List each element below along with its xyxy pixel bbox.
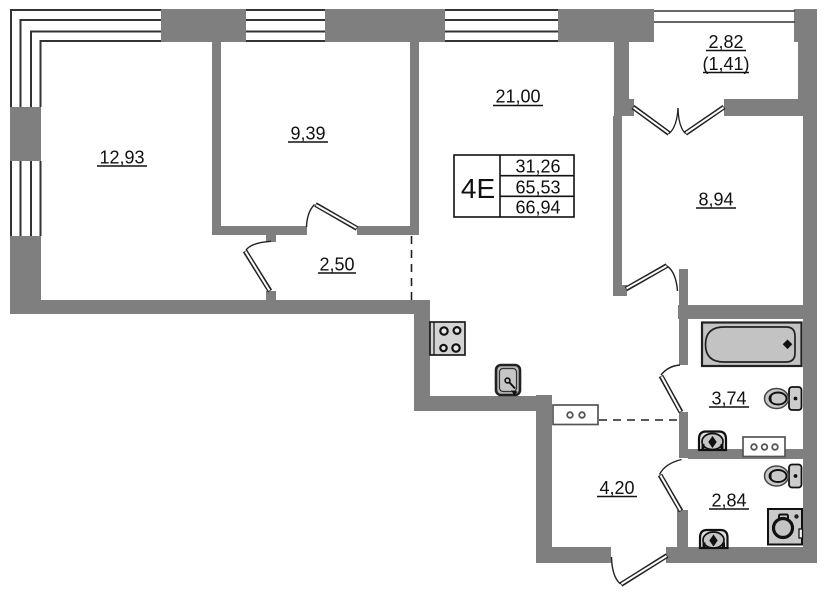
svg-text:9,39: 9,39 — [290, 124, 325, 144]
svg-text:(1,41): (1,41) — [702, 54, 749, 74]
svg-text:4E: 4E — [461, 173, 495, 204]
svg-text:21,00: 21,00 — [495, 87, 540, 107]
svg-text:65,53: 65,53 — [515, 178, 560, 198]
svg-text:2,50: 2,50 — [319, 255, 354, 275]
svg-text:31,26: 31,26 — [515, 157, 560, 177]
svg-text:66,94: 66,94 — [515, 198, 560, 218]
svg-text:3,74: 3,74 — [711, 389, 746, 409]
svg-text:4,20: 4,20 — [599, 478, 634, 498]
svg-text:12,93: 12,93 — [99, 148, 144, 168]
svg-text:2,84: 2,84 — [711, 491, 746, 511]
svg-text:2,82: 2,82 — [708, 32, 743, 52]
svg-text:8,94: 8,94 — [698, 190, 733, 210]
